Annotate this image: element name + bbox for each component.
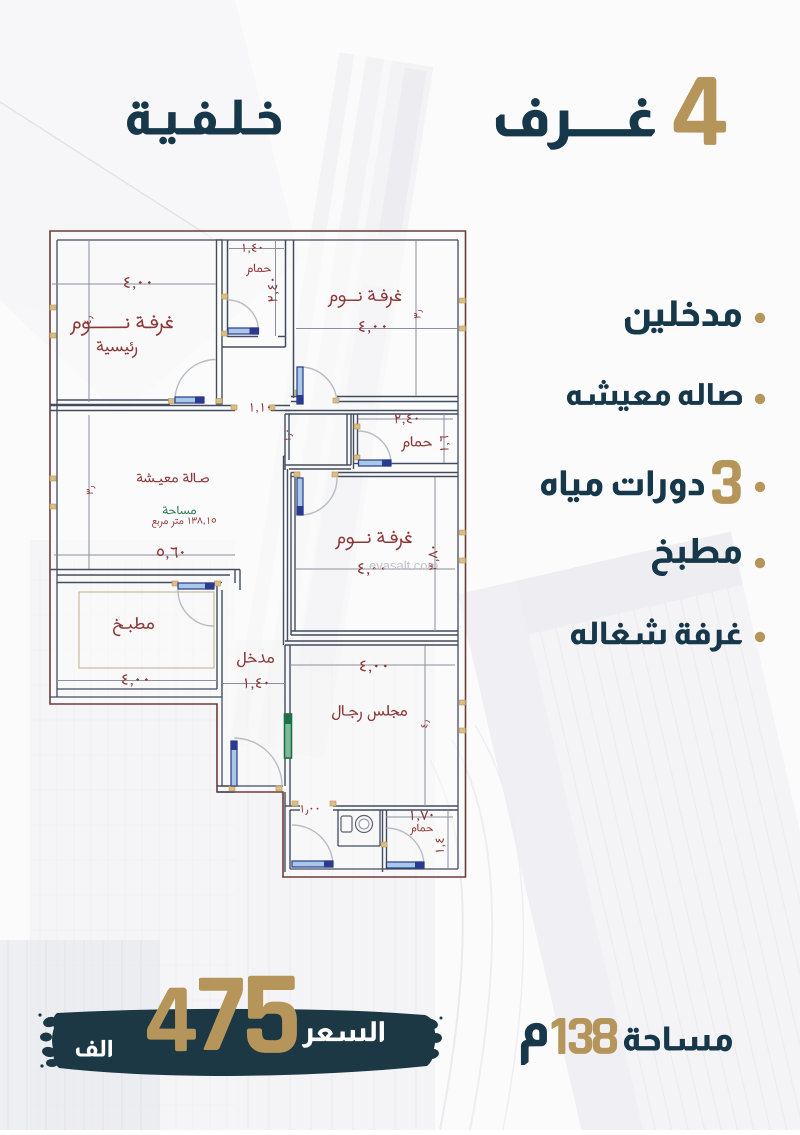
svg-text:evasalt.com: evasalt.com [369,558,438,573]
